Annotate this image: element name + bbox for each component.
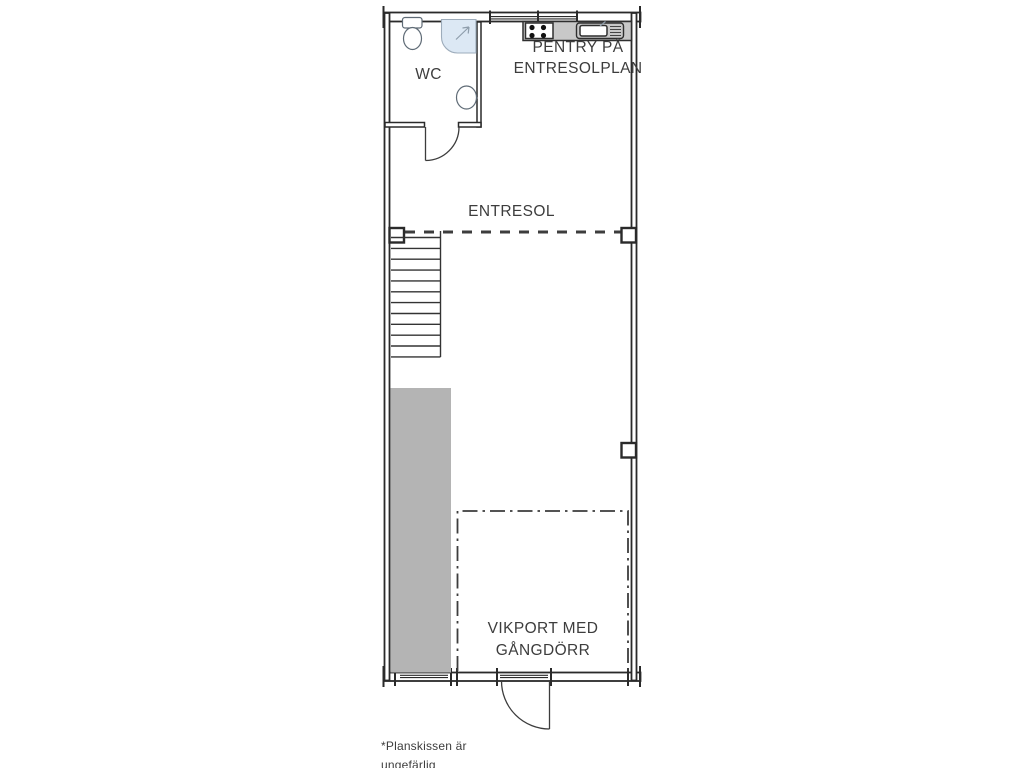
right-wall [632, 13, 637, 681]
pentry-label-line2: ENTRESOLPLAN [496, 58, 660, 79]
gray-floor-area [391, 388, 452, 673]
footnote-line2: ungefärlig [381, 756, 511, 768]
entry-door-swing-icon [502, 681, 550, 729]
vikport-label-line2: GÅNGDÖRR [462, 640, 624, 662]
footnote: *Planskissen är ungefärlig [381, 737, 511, 768]
floorplan-page: PENTRY PÅ ENTRESOLPLAN WC ENTRESOL VIKPO… [0, 0, 1024, 768]
shower-icon [442, 20, 477, 54]
entresol-label: ENTRESOL [451, 201, 572, 222]
wc-door-swing-icon [426, 127, 460, 161]
kitchen-sink-icon [577, 22, 624, 39]
wall-connector-left [390, 228, 405, 243]
vikport-label: VIKPORT MED GÅNGDÖRR [462, 618, 624, 662]
wall-connector-right [622, 228, 637, 243]
toilet-icon [403, 18, 423, 50]
footnote-line1: *Planskissen är [381, 737, 511, 756]
left-wall [385, 13, 390, 681]
bottom-wall [384, 673, 641, 682]
wc-label-text: WC [403, 64, 454, 85]
wc-label: WC [403, 64, 454, 85]
stairs-icon [391, 231, 441, 357]
entresol-label-text: ENTRESOL [451, 201, 572, 222]
pentry-label-line1: PENTRY PÅ [496, 37, 660, 58]
vikport-label-line1: VIKPORT MED [462, 618, 624, 640]
wall-connector-right-lower [622, 443, 637, 458]
wc-bottom-wall-left [385, 123, 425, 128]
pentry-label: PENTRY PÅ ENTRESOLPLAN [496, 37, 660, 79]
wc-right-wall [477, 22, 481, 127]
wc-bottom-wall-right [459, 123, 482, 128]
washbasin-icon [457, 86, 478, 109]
